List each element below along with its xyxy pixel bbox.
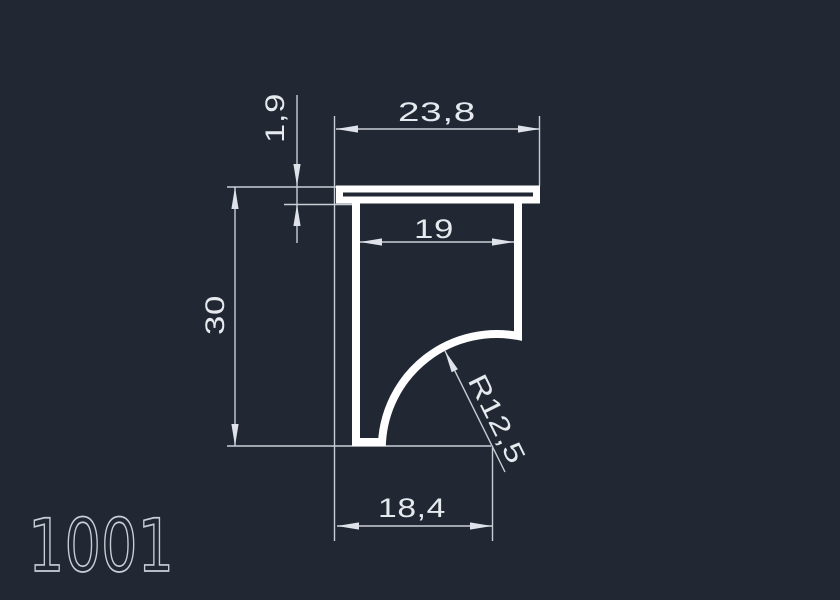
dim-label-overall-height: 30 [200,295,230,335]
dim-label-bottom-width: 18,4 [378,493,446,523]
cad-viewport: 23,8 1,9 19 30 18,4 R12,5 1001 [0,0,840,600]
extension-lines [227,116,540,541]
cad-drawing-canvas: 23,8 1,9 19 30 18,4 R12,5 1001 [0,0,840,600]
dim-label-inner-width: 19 [414,214,454,244]
arrowhead-left [360,238,382,245]
profile-flange [340,189,537,200]
arrowhead-down [293,164,300,186]
arrowhead-right [470,522,492,529]
arrowhead-right [492,238,514,245]
dimension-bottom-width: 18,4 [337,493,492,530]
dimension-inner-width: 19 [360,214,514,246]
dimension-flange-thickness: 1,9 [260,93,301,243]
arrowhead-radius [445,351,458,372]
dimension-flange-width: 23,8 [336,97,540,133]
arrowhead-left [337,522,359,529]
arrowhead-down [231,424,238,446]
arrowhead-right [518,125,540,132]
arrowhead-left [336,125,358,132]
dimension-overall-height: 30 [200,187,239,446]
arrowhead-up [293,204,300,226]
dim-label-fillet-radius: R12,5 [462,369,532,468]
drawing-number-label: 1001 [28,504,174,589]
dimension-fillet-radius: R12,5 [445,351,532,472]
arrowhead-up [231,187,238,209]
dim-label-flange-thickness: 1,9 [260,93,290,143]
dim-label-flange-width: 23,8 [398,97,476,127]
